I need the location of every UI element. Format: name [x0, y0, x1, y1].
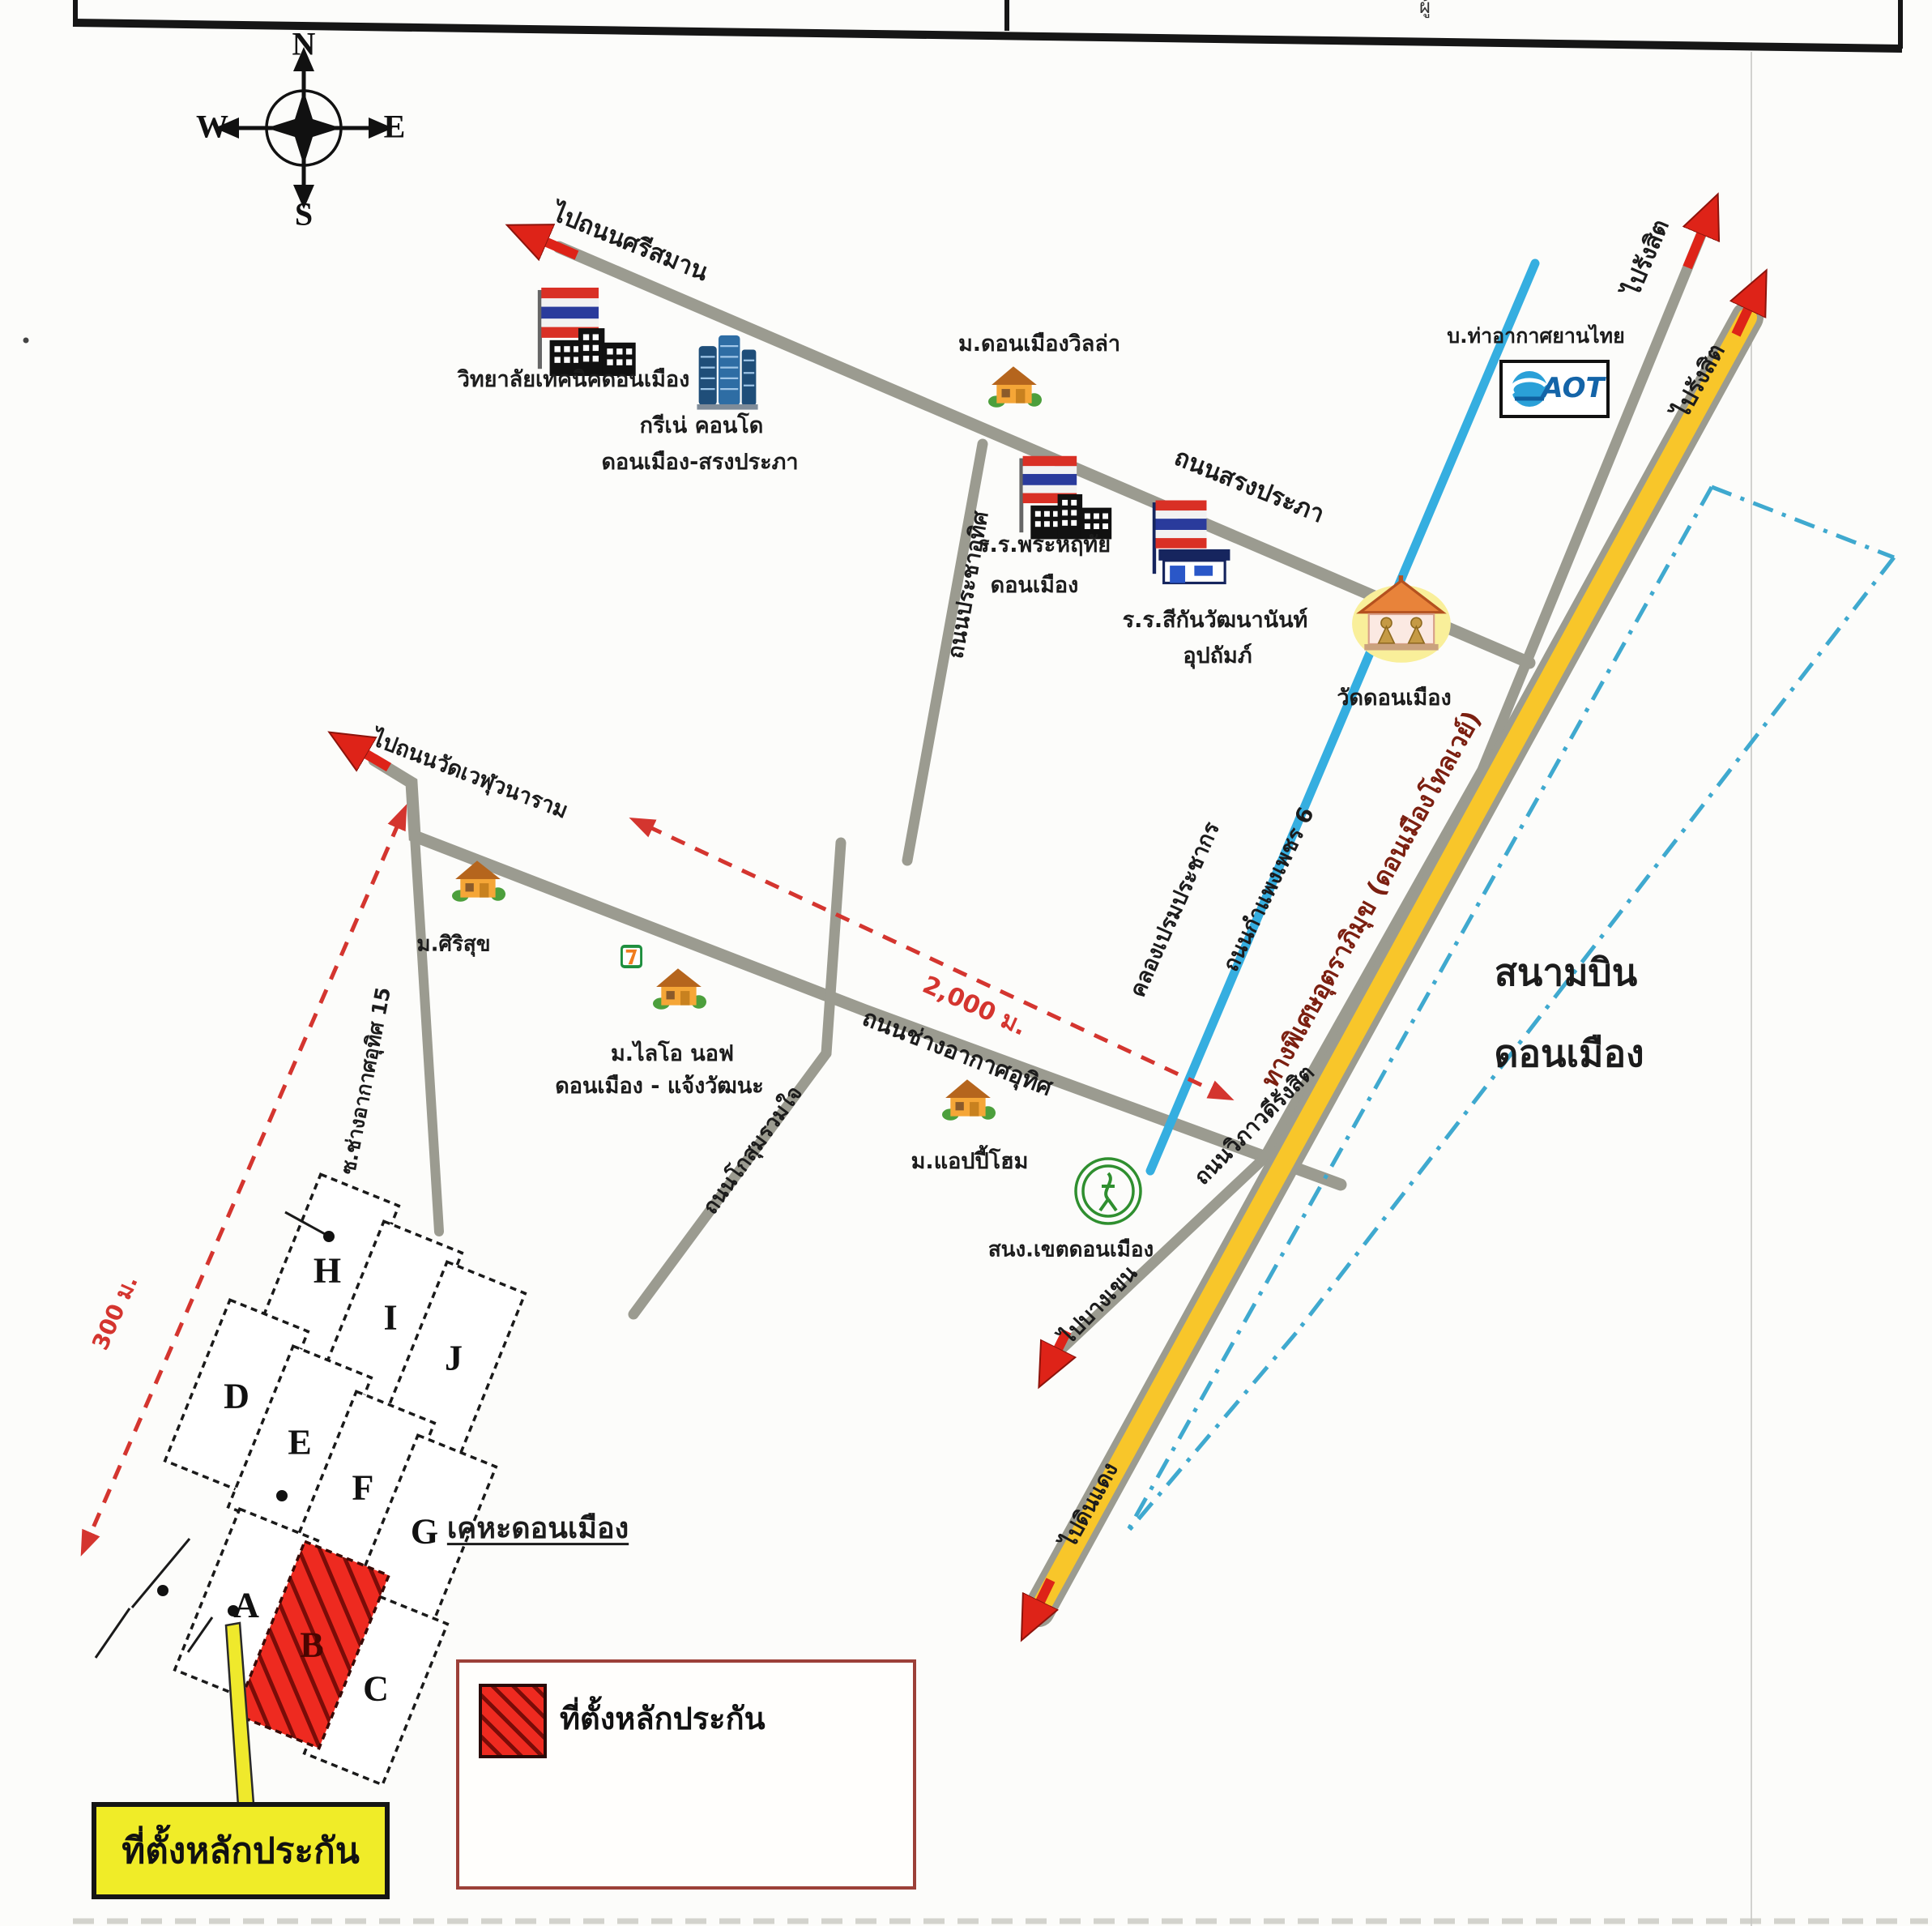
- plot-letter-b: B: [300, 1625, 323, 1666]
- plot-letter-d: D: [224, 1376, 249, 1417]
- place-label-sirisuk: ม.ศิริสุข: [416, 933, 490, 955]
- house-icon: [988, 366, 1042, 408]
- plot-letter-f: F: [352, 1467, 374, 1509]
- compass-rose: [236, 68, 372, 188]
- place-label-aot-company: บ.ท่าอากาศยานไทย: [1447, 326, 1624, 347]
- airport-label-2: ดอนเมือง: [1494, 1034, 1644, 1073]
- place-label-lio-nov-1: ม.ไลโอ นอฟ: [611, 1043, 734, 1065]
- road-stub-vertical: [826, 843, 841, 1053]
- compass-east-label: E: [384, 108, 406, 146]
- kheha-donmueang-title: เคหะดอนเมือง: [447, 1514, 629, 1544]
- compass-west-label: W: [196, 108, 228, 146]
- road-chang-akat-uthit: [374, 760, 1341, 1185]
- place-label-technical-college: วิทยาลัยเทคนิคดอนเมือง: [458, 369, 690, 391]
- collateral-callout-label: ที่ตั้งหลักประกัน: [122, 1822, 360, 1879]
- road-soi-15: [415, 836, 439, 1232]
- place-label-donmueang-villa: ม.ดอนเมืองวิลล่า: [958, 333, 1120, 356]
- compass-south-label: S: [295, 195, 313, 233]
- ink-speck: [23, 338, 29, 344]
- plot-letter-h: H: [313, 1250, 341, 1292]
- legend-collateral-label: ที่ตั้งหลักประกัน: [560, 1693, 766, 1743]
- seven-eleven-icon: [621, 945, 642, 968]
- condo-icon: [697, 335, 757, 410]
- plot-letter-a: A: [233, 1585, 259, 1626]
- place-label-sikan-1: ร.ร.สีกันวัฒนานันท์: [1123, 609, 1308, 632]
- place-label-sikan-2: อุปถัมภ์: [1183, 645, 1252, 668]
- plot-letter-c: C: [363, 1668, 389, 1710]
- plot-letter-e: E: [288, 1422, 311, 1463]
- aot-logo-text: AOT: [1542, 374, 1604, 404]
- house-icon: [942, 1079, 996, 1121]
- compass-north-label: N: [292, 25, 316, 63]
- legend-collateral-swatch: [479, 1684, 547, 1758]
- place-label-grene-condo-2: ดอนเมือง-สรงประภา: [601, 451, 798, 474]
- map-page: ผู้ N S W E ไปถนนศรีสมาน ถนนสรงประภา ถนน…: [0, 0, 1932, 1926]
- table-remnant: [73, 0, 1902, 49]
- school-shop-icon: [1153, 501, 1230, 583]
- place-label-happy-home: ม.แอปปี้โฮม: [911, 1151, 1029, 1173]
- plot-letter-g: G: [411, 1511, 438, 1552]
- header-fragment: ผู้: [1419, 0, 1431, 22]
- place-label-phra-haruethai-2: ดอนเมือง: [991, 574, 1079, 597]
- place-label-district-office: สนง.เขตดอนเมือง: [988, 1239, 1154, 1261]
- school-icon: [538, 288, 636, 376]
- district-seal-icon: [1076, 1159, 1141, 1224]
- collateral-callout: ที่ตั้งหลักประกัน: [92, 1802, 390, 1899]
- place-label-phra-haruethai-1: ร.ร.พระหฤทัย: [978, 534, 1111, 557]
- legend: ที่ตั้งหลักประกัน: [456, 1659, 916, 1890]
- place-label-grene-condo-1: กรีเน่ คอนโด: [640, 415, 764, 438]
- school-icon: [1019, 456, 1111, 540]
- house-icon: [653, 968, 706, 1010]
- plot-letter-j: J: [445, 1338, 463, 1379]
- plot-letter-i: I: [383, 1297, 397, 1339]
- airport-label-1: สนามบิน: [1495, 953, 1637, 992]
- place-label-wat-donmueang: วัดดอนเมือง: [1337, 687, 1451, 710]
- place-label-lio-nov-2: ดอนเมือง - แจ้งวัฒนะ: [555, 1075, 764, 1098]
